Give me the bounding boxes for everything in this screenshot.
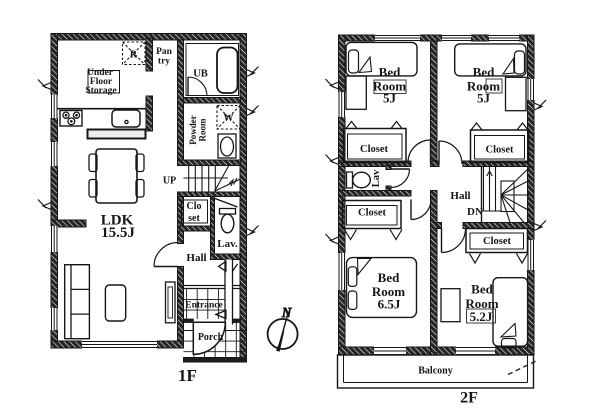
- svg-text:Balcony: Balcony: [418, 366, 452, 377]
- svg-text:set: set: [188, 213, 200, 224]
- svg-text:Powder: Powder: [188, 115, 198, 145]
- svg-text:R: R: [130, 50, 138, 61]
- svg-text:Bed: Bed: [471, 282, 493, 297]
- svg-text:Pan: Pan: [156, 47, 173, 57]
- svg-text:UB: UB: [193, 69, 208, 80]
- svg-text:try: try: [158, 57, 170, 67]
- svg-text:5.2J: 5.2J: [470, 309, 493, 324]
- svg-text:Hall: Hall: [186, 252, 206, 264]
- svg-text:6.5J: 6.5J: [378, 297, 401, 312]
- svg-text:Storage: Storage: [85, 86, 116, 96]
- svg-text:2F: 2F: [460, 390, 478, 407]
- svg-text:Closet: Closet: [486, 145, 514, 156]
- svg-text:Bed: Bed: [379, 65, 401, 80]
- svg-text:Bed: Bed: [378, 270, 400, 285]
- svg-text:Hall: Hall: [450, 190, 470, 202]
- svg-text:Clo: Clo: [187, 201, 202, 212]
- svg-text:Porch: Porch: [198, 332, 224, 343]
- svg-text:Closet: Closet: [483, 236, 511, 247]
- svg-text:DN: DN: [467, 206, 483, 218]
- svg-text:1F: 1F: [178, 366, 197, 385]
- svg-text:5J: 5J: [477, 91, 491, 106]
- svg-text:W: W: [224, 113, 234, 124]
- svg-text:Lav: Lav: [371, 169, 382, 187]
- svg-text:Closet: Closet: [358, 208, 386, 219]
- svg-text:N: N: [281, 305, 292, 320]
- svg-text:Entrance: Entrance: [185, 301, 222, 311]
- svg-text:5J: 5J: [383, 91, 397, 106]
- svg-text:Room: Room: [198, 118, 208, 141]
- svg-text:UP: UP: [163, 176, 176, 187]
- svg-text:15.5J: 15.5J: [101, 225, 135, 241]
- svg-text:Closet: Closet: [360, 144, 388, 155]
- svg-text:Bed: Bed: [473, 65, 495, 80]
- svg-text:Lav.: Lav.: [217, 238, 238, 250]
